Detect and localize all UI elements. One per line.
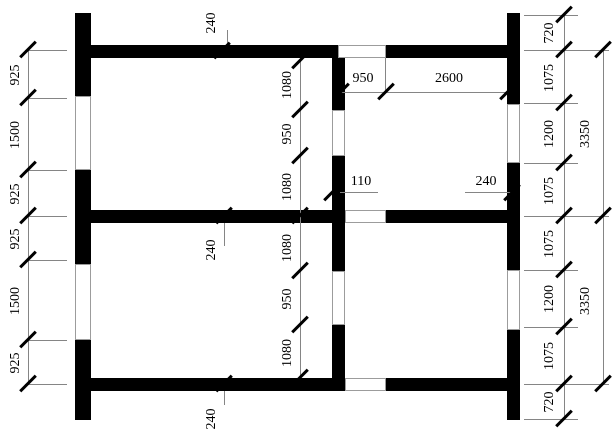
dim-label-right-inner-1: 720 xyxy=(542,9,558,57)
wall-right-lower xyxy=(507,330,520,420)
wall-interior-segment-4 xyxy=(332,325,345,378)
dim-line-mid-right xyxy=(465,192,511,193)
dim-label-left-2: 1500 xyxy=(8,111,24,159)
dim-label-right-inner-8: 720 xyxy=(542,378,558,426)
window-left-upper xyxy=(75,96,91,170)
dim-label-wall-bottom: 240 xyxy=(204,395,220,434)
dim-label-interior-5: 950 xyxy=(280,275,296,323)
dim-label-top-span: 2600 xyxy=(425,71,473,87)
dim-label-left-5: 1500 xyxy=(8,277,24,325)
extension-line xyxy=(524,163,578,164)
wall-bottom-left-segment xyxy=(75,378,345,391)
extension-line xyxy=(524,216,609,217)
opening-bottom-wall xyxy=(345,378,386,391)
extension-line xyxy=(524,50,609,51)
dim-label-interior-2: 950 xyxy=(280,110,296,158)
wall-middle-right-segment xyxy=(386,210,507,223)
extension-line xyxy=(25,98,67,99)
dim-label-interior-1: 1080 xyxy=(280,61,296,109)
dim-label-right-outer-2: 3350 xyxy=(578,277,594,325)
window-right-lower xyxy=(507,270,520,330)
dim-label-right-inner-7: 1075 xyxy=(542,332,558,380)
dim-label-mid-wall: 240 xyxy=(462,174,510,190)
extension-line xyxy=(25,216,67,217)
wall-bottom-right-segment xyxy=(386,378,507,391)
opening-middle-wall xyxy=(345,210,386,223)
dim-label-left-6: 925 xyxy=(8,339,24,387)
window-right-upper xyxy=(507,104,520,163)
opening-top-wall xyxy=(338,45,386,58)
extension-line xyxy=(25,170,67,171)
dim-line-top xyxy=(341,92,507,93)
dim-label-right-inner-5: 1075 xyxy=(542,220,558,268)
extension-line xyxy=(524,270,578,271)
dim-label-right-inner-2: 1075 xyxy=(542,54,558,102)
dim-label-mid-stub: 110 xyxy=(337,174,385,190)
dim-label-right-inner-4: 1075 xyxy=(542,167,558,215)
window-interior-upper xyxy=(332,110,345,156)
dim-label-wall-middle: 240 xyxy=(204,226,220,274)
dim-label-left-4: 925 xyxy=(8,215,24,263)
floor-plan: 925 1500 925 925 1500 925 1080 950 1080 … xyxy=(0,0,616,434)
window-left-lower xyxy=(75,264,91,340)
dim-label-left-3: 925 xyxy=(8,170,24,218)
extension-line xyxy=(25,50,67,51)
dim-label-interior-3: 1080 xyxy=(280,163,296,211)
dim-label-right-inner-6: 1200 xyxy=(542,275,558,323)
dim-label-left-1: 925 xyxy=(8,51,24,99)
extension-line xyxy=(25,260,67,261)
extension-line xyxy=(524,384,609,385)
extension-line xyxy=(524,103,578,104)
window-interior-lower xyxy=(332,271,345,325)
dim-label-interior-6: 1080 xyxy=(280,329,296,377)
dim-label-right-inner-3: 1200 xyxy=(542,110,558,158)
leader-bottom-240 xyxy=(224,391,225,405)
extension-line xyxy=(25,340,67,341)
extension-line xyxy=(25,384,67,385)
wall-top-right-segment xyxy=(386,45,507,58)
leader-middle-240 xyxy=(224,223,225,246)
dim-label-interior-4: 1080 xyxy=(280,224,296,272)
dim-label-top-opening: 950 xyxy=(339,71,387,87)
dim-label-right-outer-1: 3350 xyxy=(578,110,594,158)
extension-line xyxy=(524,327,578,328)
wall-interior-segment-3 xyxy=(332,223,345,271)
dim-label-wall-top: 240 xyxy=(204,0,220,47)
dim-line-mid-left xyxy=(340,192,378,193)
